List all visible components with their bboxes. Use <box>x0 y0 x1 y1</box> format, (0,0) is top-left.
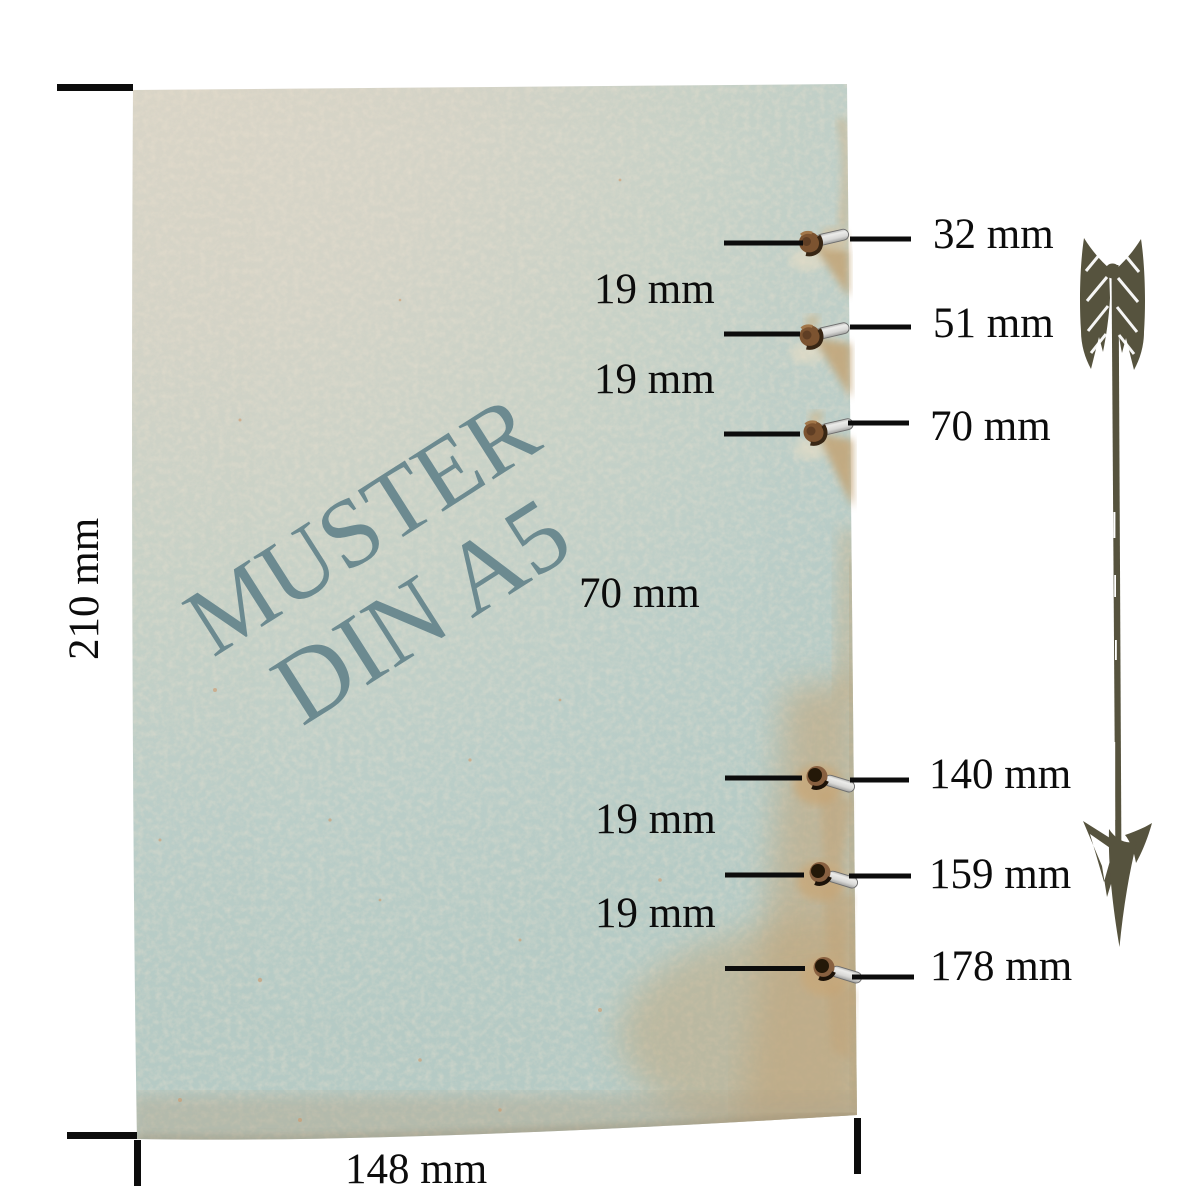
svg-text:70 mm: 70 mm <box>930 403 1051 450</box>
svg-text:19 mm: 19 mm <box>595 890 716 937</box>
svg-text:70 mm: 70 mm <box>579 570 700 617</box>
svg-text:19 mm: 19 mm <box>594 356 715 403</box>
svg-text:140 mm: 140 mm <box>929 751 1071 798</box>
svg-text:159 mm: 159 mm <box>929 851 1071 898</box>
svg-text:32 mm: 32 mm <box>933 211 1054 258</box>
svg-text:51 mm: 51 mm <box>933 300 1054 347</box>
svg-text:178 mm: 178 mm <box>930 943 1072 990</box>
svg-text:210 mm: 210 mm <box>61 518 108 660</box>
svg-text:19 mm: 19 mm <box>595 796 716 843</box>
svg-text:19 mm: 19 mm <box>594 266 715 313</box>
svg-text:148 mm: 148 mm <box>345 1146 487 1193</box>
